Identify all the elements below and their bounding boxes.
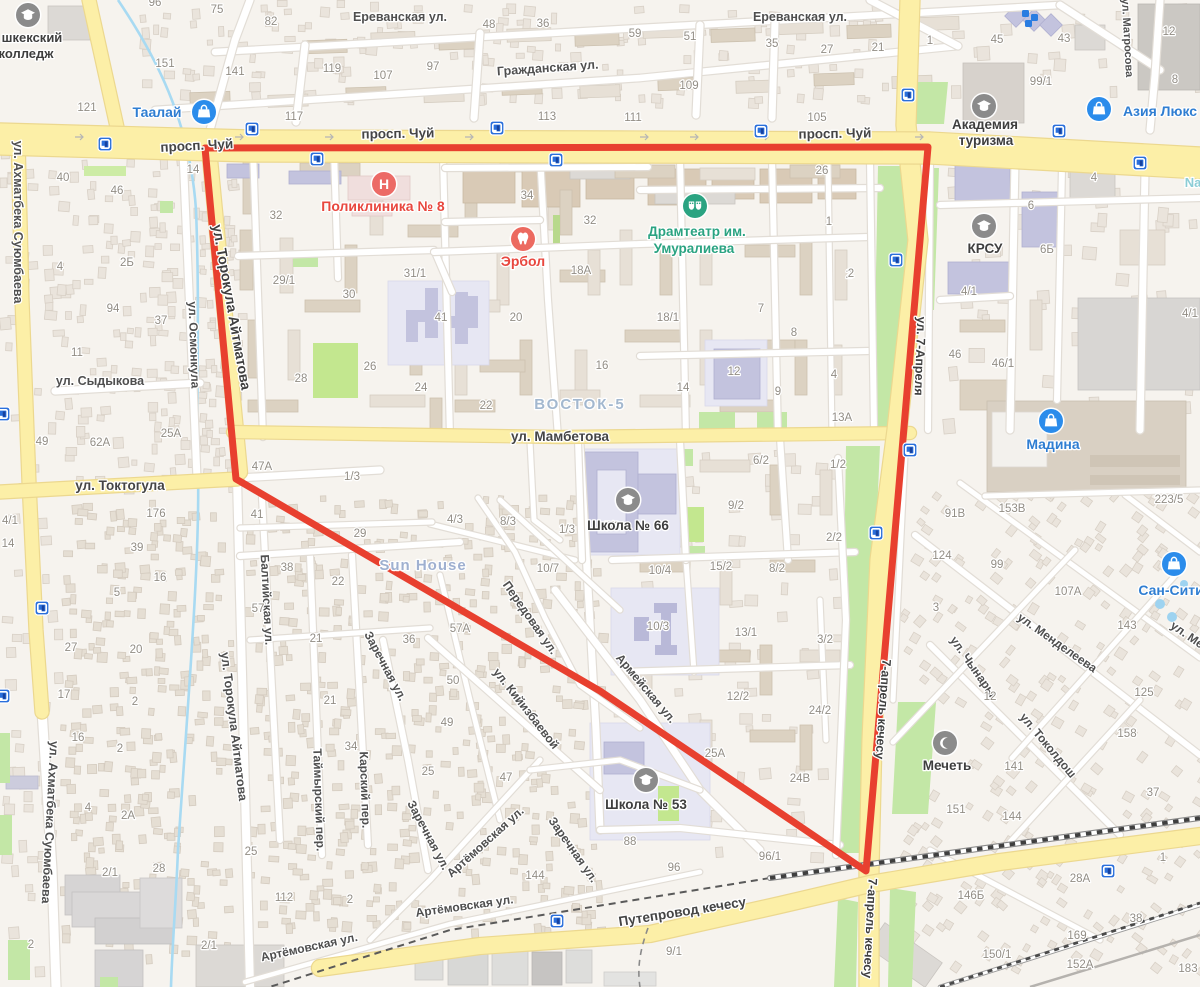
svg-text:туризма: туризма (959, 133, 1014, 148)
svg-text:Ереванская ул.: Ереванская ул. (353, 10, 447, 24)
svg-text:6: 6 (1028, 200, 1034, 212)
svg-text:24/2: 24/2 (809, 705, 831, 717)
svg-text:39: 39 (131, 542, 144, 554)
svg-text:ул. Ахматбека Суюмбаева: ул. Ахматбека Суюмбаева (11, 141, 25, 305)
svg-text:9: 9 (775, 386, 781, 398)
svg-text:125: 125 (1134, 687, 1153, 699)
svg-text:20: 20 (130, 644, 143, 656)
svg-text:21: 21 (310, 633, 323, 645)
svg-text:16: 16 (154, 572, 167, 584)
svg-text:2: 2 (28, 939, 34, 951)
svg-text:Таалай: Таалай (132, 104, 181, 120)
svg-text:12/2: 12/2 (727, 691, 749, 703)
svg-text:38: 38 (281, 562, 294, 574)
svg-text:47: 47 (500, 772, 513, 784)
svg-text:Карский пер.: Карский пер. (357, 751, 374, 828)
svg-text:59: 59 (629, 28, 642, 40)
svg-text:47А: 47А (252, 461, 273, 473)
svg-text:4/1: 4/1 (1182, 308, 1198, 320)
svg-text:13/1: 13/1 (735, 627, 757, 639)
svg-text:113: 113 (538, 111, 556, 123)
svg-text:26: 26 (816, 165, 829, 177)
svg-text:Мадина: Мадина (1026, 436, 1080, 452)
svg-text:4: 4 (57, 261, 64, 273)
svg-text:21: 21 (872, 42, 885, 54)
svg-text:2: 2 (347, 894, 353, 906)
svg-text:Академия: Академия (952, 117, 1018, 132)
svg-text:28А: 28А (1070, 873, 1091, 885)
svg-text:ВОСТОК-5: ВОСТОК-5 (534, 396, 626, 413)
svg-text:10/7: 10/7 (537, 563, 559, 575)
svg-text:1/3: 1/3 (559, 524, 575, 536)
svg-text:8: 8 (791, 327, 797, 339)
svg-text:Ереванская ул.: Ереванская ул. (753, 10, 847, 24)
svg-text:15/2: 15/2 (710, 561, 732, 573)
svg-text:1: 1 (927, 35, 933, 47)
svg-text:41: 41 (251, 509, 264, 521)
svg-text:88: 88 (624, 836, 637, 848)
svg-text:20: 20 (510, 312, 523, 324)
svg-text:27: 27 (65, 642, 78, 654)
svg-text:36: 36 (537, 18, 550, 30)
svg-text:Мечеть: Мечеть (923, 758, 972, 773)
svg-text:50: 50 (447, 675, 460, 687)
svg-text:37: 37 (155, 315, 168, 327)
svg-text:112: 112 (275, 892, 293, 904)
svg-text:38: 38 (1130, 913, 1143, 925)
svg-text:141: 141 (1004, 761, 1023, 773)
svg-text:29/1: 29/1 (273, 275, 295, 287)
svg-text:колледж: колледж (0, 46, 54, 61)
svg-text:18А: 18А (571, 265, 592, 277)
svg-text:75: 75 (211, 4, 224, 16)
svg-text:Школа № 66: Школа № 66 (587, 518, 669, 533)
svg-text:124: 124 (932, 550, 952, 562)
svg-text:Сан-Сити: Сан-Сити (1138, 582, 1200, 598)
svg-text:29: 29 (354, 528, 367, 540)
svg-text:4: 4 (1091, 172, 1098, 184)
svg-text:57: 57 (252, 603, 265, 615)
svg-text:14: 14 (187, 164, 200, 176)
svg-text:2Б: 2Б (120, 257, 134, 269)
svg-text:Умуралиева: Умуралиева (654, 241, 735, 256)
svg-text:27: 27 (821, 44, 834, 56)
svg-text:146Б: 146Б (958, 890, 985, 902)
svg-text:2: 2 (117, 743, 123, 755)
svg-text:9/2: 9/2 (728, 500, 744, 512)
svg-text:96: 96 (668, 862, 681, 874)
svg-text:30: 30 (343, 289, 356, 301)
svg-text:35: 35 (766, 38, 779, 50)
svg-text:45: 45 (991, 34, 1004, 46)
svg-text:Na: Na (1185, 175, 1200, 190)
svg-text:3: 3 (933, 602, 939, 614)
svg-text:Поликлиника № 8: Поликлиника № 8 (321, 198, 445, 214)
svg-text:2/1: 2/1 (102, 867, 118, 879)
svg-text:94: 94 (107, 303, 120, 315)
svg-text:36: 36 (403, 634, 416, 646)
svg-text:176: 176 (146, 508, 165, 520)
svg-text:51: 51 (684, 31, 697, 43)
svg-text:49: 49 (441, 717, 454, 729)
svg-text:14: 14 (2, 538, 15, 550)
svg-text:109: 109 (679, 80, 698, 92)
svg-text:144: 144 (1002, 811, 1022, 823)
svg-text:82: 82 (265, 16, 278, 28)
svg-text:117: 117 (285, 111, 303, 123)
svg-text:48: 48 (483, 19, 496, 31)
svg-text:8/2: 8/2 (769, 563, 785, 575)
svg-text:12: 12 (984, 691, 997, 703)
svg-text:17: 17 (58, 689, 71, 701)
svg-text:107: 107 (373, 70, 392, 82)
svg-text:141: 141 (225, 66, 244, 78)
svg-text:2: 2 (848, 268, 854, 280)
svg-text:25: 25 (245, 846, 258, 858)
svg-text:4: 4 (85, 802, 92, 814)
svg-text:62А: 62А (90, 437, 111, 449)
svg-text:22: 22 (480, 400, 493, 412)
svg-text:Школа № 53: Школа № 53 (605, 797, 687, 812)
svg-text:57А: 57А (450, 623, 471, 635)
svg-text:34: 34 (521, 190, 534, 202)
svg-text:49: 49 (36, 436, 49, 448)
svg-text:10/3: 10/3 (647, 621, 669, 633)
svg-text:2А: 2А (121, 810, 135, 822)
svg-text:6/2: 6/2 (753, 455, 769, 467)
svg-text:21: 21 (324, 695, 337, 707)
svg-text:25А: 25А (705, 748, 726, 760)
svg-text:24: 24 (415, 382, 428, 394)
svg-text:40: 40 (57, 172, 70, 184)
svg-text:1: 1 (1160, 852, 1166, 864)
svg-text:3/2: 3/2 (817, 634, 833, 646)
svg-text:2: 2 (132, 696, 138, 708)
svg-text:28: 28 (153, 863, 166, 875)
svg-text:12: 12 (728, 366, 741, 378)
svg-text:Эрбол: Эрбол (501, 253, 545, 269)
svg-text:2/1: 2/1 (201, 940, 217, 952)
svg-text:1/3: 1/3 (344, 471, 360, 483)
svg-text:143: 143 (1117, 620, 1136, 632)
svg-text:Sun House: Sun House (379, 557, 466, 574)
svg-text:26: 26 (364, 361, 377, 373)
svg-text:41: 41 (435, 312, 448, 324)
svg-text:223/5: 223/5 (1155, 494, 1184, 506)
svg-text:12: 12 (1163, 26, 1176, 38)
svg-text:8: 8 (1172, 74, 1178, 86)
svg-text:46: 46 (949, 349, 962, 361)
svg-text:119: 119 (323, 63, 341, 75)
svg-text:шкекский: шкекский (2, 30, 63, 45)
svg-text:25: 25 (422, 766, 435, 778)
svg-text:КРСУ: КРСУ (968, 241, 1003, 256)
svg-text:2/2: 2/2 (826, 532, 842, 544)
svg-text:18/1: 18/1 (657, 312, 679, 324)
svg-text:151: 151 (155, 58, 174, 70)
svg-text:6Б: 6Б (1040, 244, 1054, 256)
svg-text:32: 32 (270, 210, 283, 222)
svg-text:37: 37 (1147, 787, 1160, 799)
svg-text:158: 158 (1117, 728, 1136, 740)
svg-text:10/4: 10/4 (649, 565, 672, 577)
svg-text:16: 16 (72, 732, 85, 744)
svg-text:121: 121 (77, 102, 96, 114)
svg-text:144: 144 (525, 870, 545, 882)
svg-text:96: 96 (149, 0, 162, 9)
svg-text:22: 22 (332, 576, 345, 588)
svg-text:5: 5 (114, 587, 120, 599)
svg-text:9/1: 9/1 (666, 946, 682, 958)
svg-text:просп. Чуй: просп. Чуй (361, 125, 434, 141)
svg-text:ул. Сыдыкова: ул. Сыдыкова (56, 374, 145, 388)
svg-text:31/1: 31/1 (404, 268, 426, 280)
svg-text:ул. Токтогула: ул. Токтогула (75, 478, 165, 493)
svg-text:13А: 13А (832, 412, 853, 424)
svg-text:46/1: 46/1 (992, 358, 1014, 370)
svg-text:151: 151 (946, 804, 965, 816)
svg-text:91В: 91В (945, 508, 966, 520)
svg-text:105: 105 (807, 112, 826, 124)
svg-text:14: 14 (677, 382, 690, 394)
svg-text:8/3: 8/3 (500, 516, 516, 528)
svg-text:25А: 25А (161, 428, 182, 440)
svg-text:11: 11 (71, 347, 83, 359)
svg-text:4/1: 4/1 (2, 515, 18, 527)
svg-text:32: 32 (584, 215, 597, 227)
svg-text:16: 16 (596, 360, 609, 372)
svg-text:1: 1 (826, 216, 832, 228)
svg-text:Азия Люкс: Азия Люкс (1123, 103, 1197, 119)
svg-text:ул. Мамбетова: ул. Мамбетова (511, 429, 610, 444)
svg-text:просп. Чуй: просп. Чуй (798, 125, 871, 141)
svg-text:107А: 107А (1055, 586, 1082, 598)
svg-text:169: 169 (1067, 930, 1086, 942)
svg-text:150/1: 150/1 (983, 949, 1012, 961)
svg-text:183: 183 (1178, 963, 1197, 975)
svg-text:43: 43 (1058, 33, 1071, 45)
svg-text:153В: 153В (999, 503, 1026, 515)
svg-text:24В: 24В (790, 773, 811, 785)
svg-text:97: 97 (427, 61, 440, 73)
svg-text:99: 99 (991, 559, 1004, 571)
svg-text:111: 111 (624, 112, 641, 124)
svg-text:4/1: 4/1 (961, 286, 977, 298)
svg-text:46: 46 (111, 185, 124, 197)
svg-text:Драмтеатр им.: Драмтеатр им. (648, 224, 746, 239)
svg-text:ул. 7-Апреля: ул. 7-Апреля (912, 316, 929, 396)
svg-text:1/2: 1/2 (830, 459, 846, 471)
svg-text:34: 34 (345, 741, 358, 753)
svg-text:4: 4 (831, 369, 838, 381)
svg-text:152А: 152А (1067, 959, 1094, 971)
svg-text:7: 7 (758, 303, 764, 315)
svg-text:4/3: 4/3 (447, 514, 463, 526)
svg-text:96/1: 96/1 (759, 851, 781, 863)
svg-text:H: H (379, 176, 389, 192)
svg-text:28: 28 (295, 373, 308, 385)
svg-text:99/1: 99/1 (1030, 76, 1052, 88)
